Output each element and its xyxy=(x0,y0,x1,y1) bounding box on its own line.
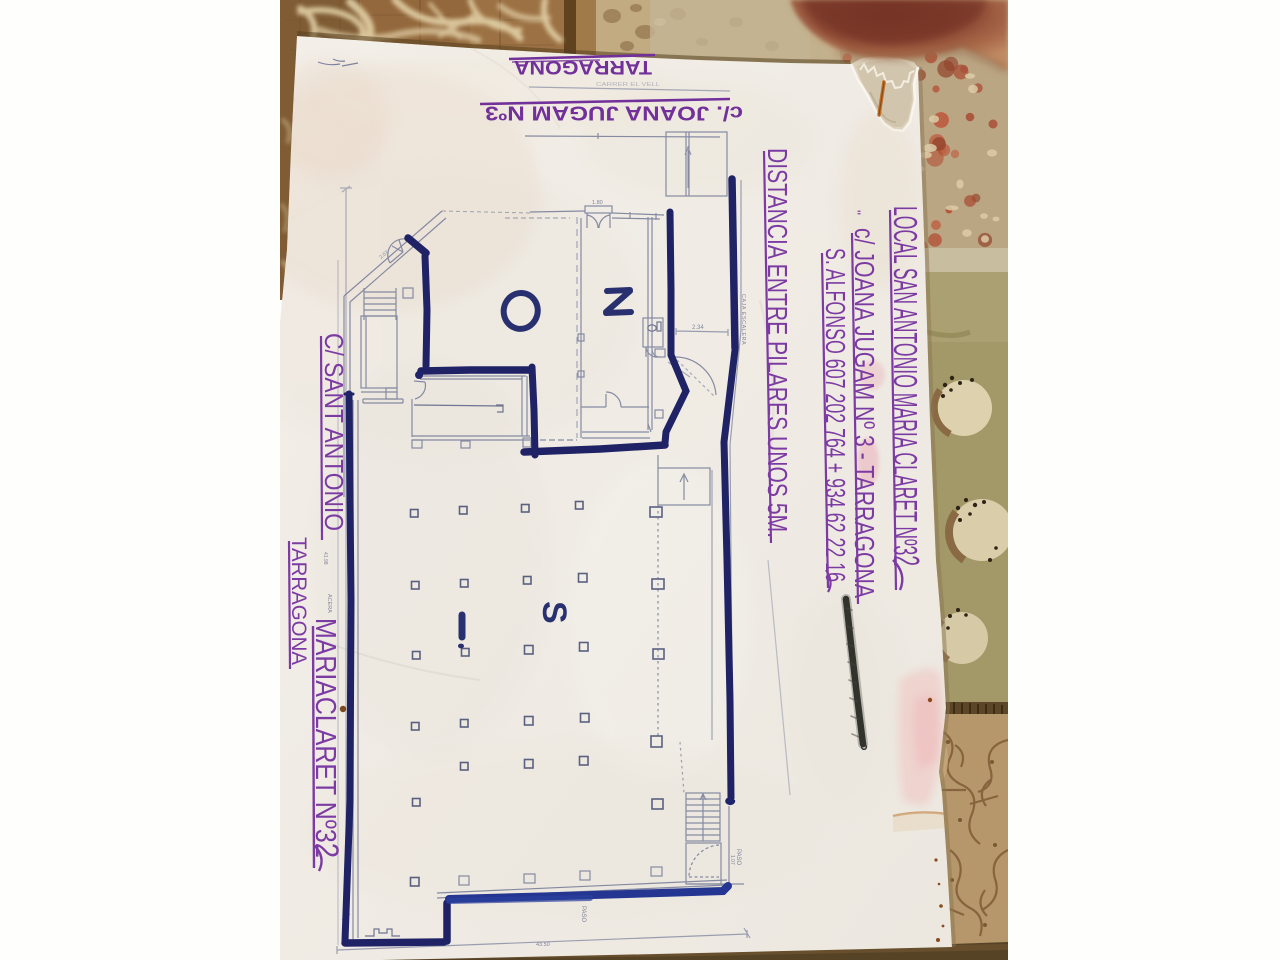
svg-text:CAJA ESCALERA: CAJA ESCALERA xyxy=(740,294,746,345)
svg-text:S: S xyxy=(535,601,573,624)
svg-text:1.07: 1.07 xyxy=(729,855,735,865)
svg-text:CARRER EL VELL: CARRER EL VELL xyxy=(596,82,660,88)
svg-text:43.50: 43.50 xyxy=(536,942,550,948)
svg-text:PASO: PASO xyxy=(580,906,586,923)
svg-text:": " xyxy=(848,210,864,215)
svg-text:41.98: 41.98 xyxy=(322,552,328,565)
svg-text:c/. JOANA JUGAM Nº3: c/. JOANA JUGAM Nº3 xyxy=(485,102,743,124)
svg-text:2.34: 2.34 xyxy=(692,325,704,331)
svg-text:ACERA: ACERA xyxy=(326,594,332,613)
svg-text:1.80: 1.80 xyxy=(592,200,603,206)
svg-text:C/ SANT ANTONIO: C/ SANT ANTONIO xyxy=(319,333,349,531)
